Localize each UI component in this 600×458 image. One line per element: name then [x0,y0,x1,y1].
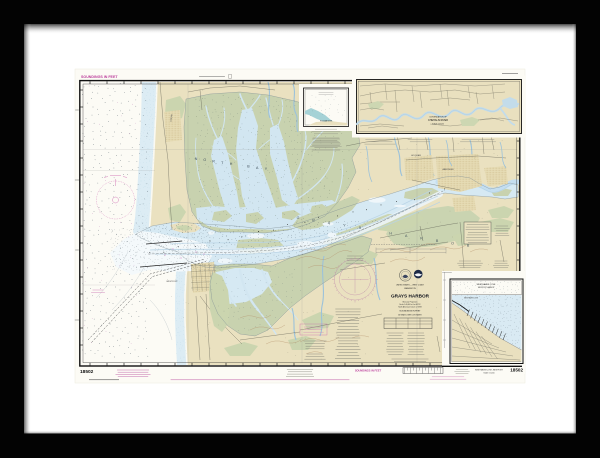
svg-text:WASHINGTON: WASHINGTON [404,287,416,290]
svg-text:18502: 18502 [80,369,94,375]
svg-text:O: O [451,242,454,246]
svg-text:O: O [203,158,206,162]
svg-text:ABERDEEN: ABERDEEN [442,168,454,171]
svg-text:Mercator Projection: Mercator Projection [403,300,418,303]
svg-text:18502: 18502 [510,368,523,373]
svg-text:R: R [467,244,470,248]
svg-text:UNITED STATES — WEST COAST: UNITED STATES — WEST COAST [396,283,425,286]
svg-text:SOUNDINGS IN FEET: SOUNDINGS IN FEET [399,311,421,313]
svg-text:CHEHALIS RIVER: CHEHALIS RIVER [428,119,448,122]
svg-text:HOQUIAM: HOQUIAM [411,154,421,157]
svg-text:R: R [312,219,315,223]
svg-text:Scale 1:40,000 at Lat 46°55': Scale 1:40,000 at Lat 46°55' [399,303,421,306]
svg-text:R: R [420,236,423,240]
svg-text:G: G [297,216,300,220]
svg-text:H: H [389,231,392,235]
svg-text:SOUNDINGS IN FEET: SOUNDINGS IN FEET [355,368,382,372]
svg-text:GRAYS HARBOR: GRAYS HARBOR [391,293,430,298]
svg-text:WESTPORT: WESTPORT [166,281,178,283]
svg-text:SOUNDINGS IN FEET: SOUNDINGS IN FEET [81,75,118,79]
svg-text:R: R [212,160,215,164]
svg-text:WESTHAVEN COVE, WESTPORT: WESTHAVEN COVE, WESTPORT [475,369,504,372]
svg-text:N: N [195,157,198,161]
svg-text:North American Datum of 1983: North American Datum of 1983 [398,306,421,309]
svg-text:H: H [230,162,233,166]
svg-text:WESTHAVEN COVE: WESTHAVEN COVE [477,283,496,286]
